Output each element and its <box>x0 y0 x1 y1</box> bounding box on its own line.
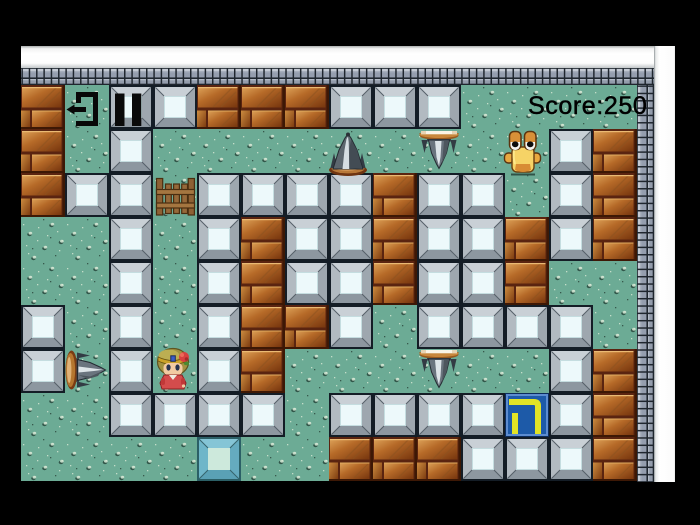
svg-text:Score:250: Score:250 <box>528 92 647 120</box>
